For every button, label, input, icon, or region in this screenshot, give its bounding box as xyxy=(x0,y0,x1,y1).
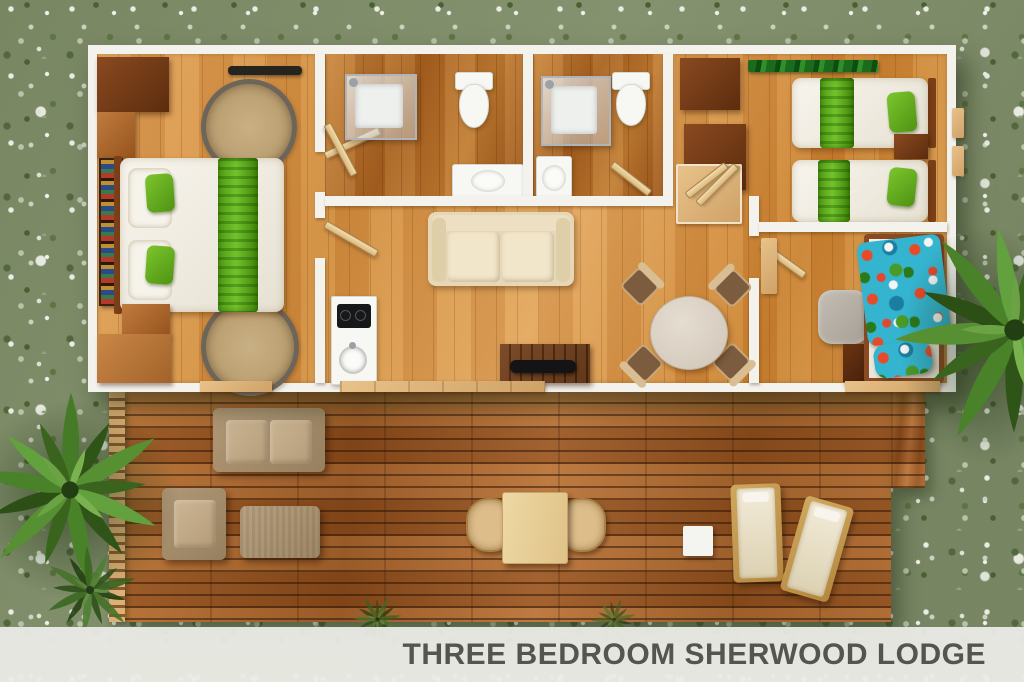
outdoor-sofa-cushion xyxy=(226,420,268,464)
floor-plan-scene: THREE BEDROOM SHERWOOD LODGE xyxy=(0,0,1024,682)
twin-bed1-runner xyxy=(820,78,854,148)
outdoor-coffee-table xyxy=(240,506,320,558)
picnic-table-top xyxy=(502,492,568,564)
sofa-arm xyxy=(556,218,570,282)
sofa xyxy=(428,212,574,286)
caption-title: THREE BEDROOM SHERWOOD LODGE xyxy=(403,627,986,682)
master-cabinet xyxy=(97,112,135,158)
third-room-shelf xyxy=(761,238,777,294)
twin-nightstand xyxy=(894,134,928,159)
basin-counter-2 xyxy=(536,156,572,198)
shower-tray xyxy=(551,86,597,134)
shower-head-icon xyxy=(545,80,554,89)
wall-master-2 xyxy=(315,192,325,218)
outdoor-sofa xyxy=(213,408,325,472)
dining-table xyxy=(650,296,728,370)
sofa-cushion xyxy=(502,232,554,282)
side-table xyxy=(683,526,713,556)
floor-cushion xyxy=(818,290,868,344)
sofa-back xyxy=(432,215,570,231)
wall-bathrooms xyxy=(523,54,533,196)
toilet-1-bowl xyxy=(459,84,489,128)
kitchen-sink xyxy=(339,346,367,374)
faucet-icon xyxy=(349,342,356,349)
sun-lounger xyxy=(730,483,783,583)
wall-third-left-1 xyxy=(749,196,759,236)
fern-cluster xyxy=(40,540,140,640)
burner-icon xyxy=(340,310,351,321)
green-pillow xyxy=(145,245,176,285)
threshold-living xyxy=(340,381,545,392)
exterior-step xyxy=(952,108,964,138)
caption-bar: THREE BEDROOM SHERWOOD LODGE xyxy=(0,627,1024,682)
lounger-headrest xyxy=(743,492,769,503)
green-bed-runner xyxy=(218,158,258,312)
twin-bed1-pillow xyxy=(886,91,917,133)
door-master xyxy=(323,221,379,258)
outdoor-armchair-cushion xyxy=(174,500,216,548)
shower-tray xyxy=(355,84,403,128)
green-pillow xyxy=(145,173,176,213)
twin-bed2-runner xyxy=(818,160,850,222)
toilet-2-bowl xyxy=(616,84,646,126)
wall-bathrooms-bottom xyxy=(325,196,673,206)
bedside-block xyxy=(122,304,170,336)
twin-wardrobe-top xyxy=(680,58,740,110)
cooktop xyxy=(337,304,371,328)
basin-1 xyxy=(471,170,505,192)
outdoor-sofa-cushion xyxy=(270,420,312,464)
shower-head-icon xyxy=(349,78,358,87)
threshold-master xyxy=(200,381,272,392)
master-wardrobe xyxy=(97,57,169,112)
shower-1 xyxy=(345,74,417,140)
basin-counter-1 xyxy=(452,164,524,198)
ac-unit xyxy=(228,66,302,75)
tv xyxy=(510,360,576,373)
wall-master-3 xyxy=(315,258,325,383)
dining-chair xyxy=(617,261,668,312)
basin-2 xyxy=(542,165,566,191)
burner-icon xyxy=(355,310,366,321)
twin-bed1-headboard xyxy=(928,78,936,148)
sofa-arm xyxy=(432,218,446,282)
bedside-bench xyxy=(97,334,171,383)
green-runner-rug xyxy=(748,60,878,72)
exterior-step xyxy=(952,146,964,176)
wall-bathroom2-right xyxy=(663,54,673,196)
lodge-building xyxy=(88,45,956,392)
sofa-cushion xyxy=(448,232,500,282)
shower-2 xyxy=(541,76,611,146)
fan-palm-right xyxy=(885,200,1024,460)
wall-master-1 xyxy=(315,54,325,152)
